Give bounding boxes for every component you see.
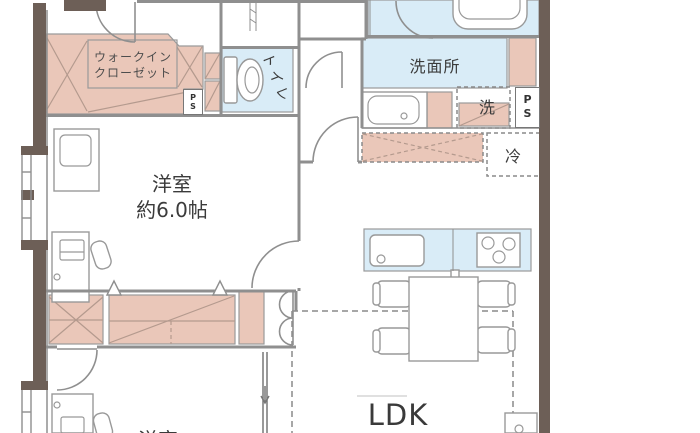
chair-desk-1: [89, 239, 113, 271]
chair-dining-4: [477, 327, 511, 353]
chair-dining-1: [377, 281, 411, 307]
closet-door-marks: [107, 281, 227, 295]
dining-table: [409, 277, 478, 361]
ldk-door-arc: [313, 117, 358, 162]
bedroom-door-arc: [252, 241, 299, 288]
desk-2: [52, 394, 93, 433]
floor-plan: ウォークイン クローゼット トイレ 洗面所 洋室 約6.0帖 洋室 LDK 洗 …: [0, 0, 700, 433]
pipe-space-closet: PS: [183, 89, 203, 115]
toilet-tank: [224, 57, 237, 103]
bedroom-label: 洋室 約6.0帖: [112, 171, 232, 223]
chair-dining-2: [377, 328, 411, 354]
chair-dining-3: [477, 281, 511, 307]
washroom-cabinet: [509, 38, 536, 86]
pipe-space-washroom: PS: [515, 87, 540, 128]
bedroom2-door-arc: [57, 350, 97, 390]
fridge-label: 冷: [496, 143, 530, 167]
washer-label: 洗: [470, 94, 504, 118]
entry-stool: [505, 413, 537, 433]
chair-desk-2: [92, 411, 114, 433]
closet-band-cabinet: [239, 291, 264, 344]
sliding-door: [261, 352, 269, 433]
washroom-door-arc: [306, 52, 342, 88]
ldk-label: LDK: [356, 398, 440, 432]
folding-door: [280, 291, 294, 318]
bedroom2-label: 洋室: [118, 424, 198, 433]
stove: [477, 233, 520, 267]
washroom-label: 洗面所: [395, 53, 475, 77]
walk-in-closet-label: ウォークイン クローゼット: [73, 49, 193, 81]
vanity-cabinet: [427, 92, 452, 128]
bathtub: [453, 0, 527, 29]
